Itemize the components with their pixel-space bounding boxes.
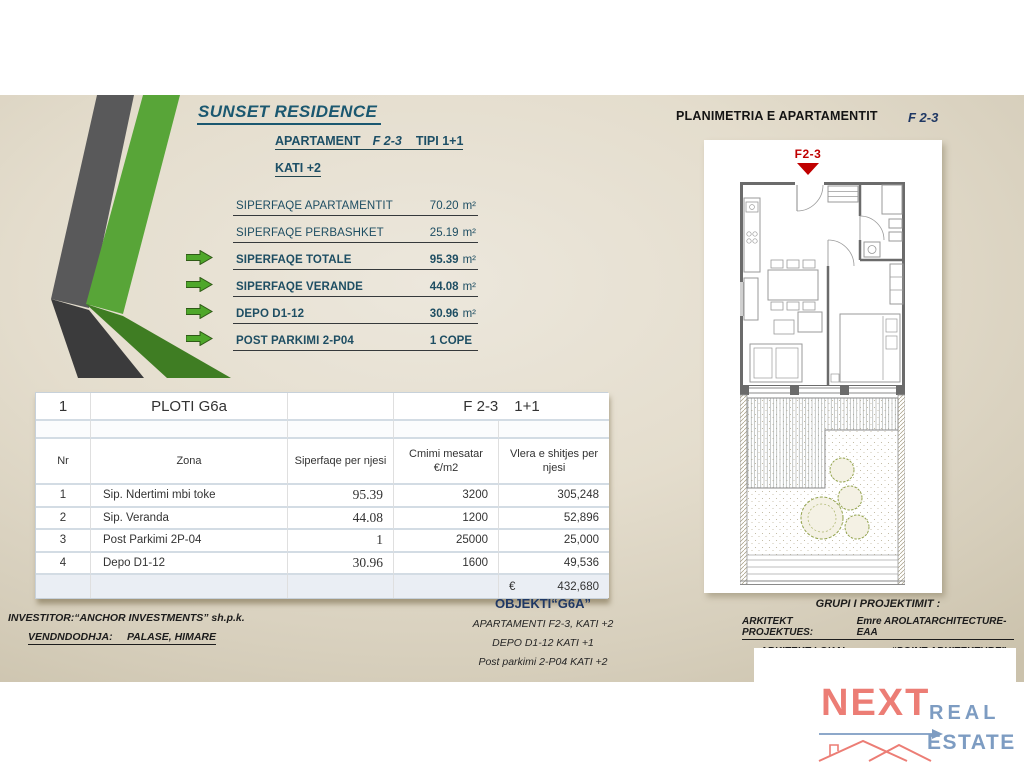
spec-number: 25.19 bbox=[430, 227, 459, 239]
green-arrow-icon bbox=[186, 331, 213, 346]
table-cell: 305,248 bbox=[499, 485, 609, 508]
object-title: OBJEKTI“G6A” bbox=[437, 596, 649, 611]
spec-label: DEPO D1-12 bbox=[236, 308, 304, 320]
spec-number: 1 COPE bbox=[430, 335, 472, 347]
object-lines: APARTAMENTI F2-3, KATI +2DEPO D1-12 KATI… bbox=[437, 615, 649, 672]
location-label: VENDNDODHJA: bbox=[28, 631, 113, 643]
spec-number: 95.39 bbox=[430, 254, 459, 266]
currency-symbol: € bbox=[509, 581, 515, 593]
spec-unit: m² bbox=[463, 308, 476, 320]
spec-value: 30.96 m² bbox=[430, 308, 476, 320]
spec-value: 95.39 m² bbox=[430, 254, 476, 266]
apartment-type: TIPI 1+1 bbox=[416, 134, 464, 148]
spec-number: 30.96 bbox=[430, 308, 459, 320]
table-cell-empty bbox=[36, 575, 91, 598]
table-cell-empty bbox=[288, 575, 394, 598]
spec-unit: m² bbox=[463, 227, 476, 239]
unit-marker-arrow-icon bbox=[797, 163, 819, 175]
table-cell: 25,000 bbox=[499, 530, 609, 553]
floorplan-panel: F2-3 bbox=[704, 140, 942, 593]
table-cell: 1 bbox=[288, 530, 394, 553]
spec-label: SIPERFAQE APARTAMENTIT bbox=[236, 200, 393, 212]
plot-name: PLOTI G6a bbox=[91, 393, 288, 421]
green-arrow-icon bbox=[186, 250, 213, 265]
architect-value: Emre AROLATARCHITECTURE-EAA bbox=[857, 616, 1014, 638]
spec-value: 44.08 m² bbox=[430, 281, 476, 293]
spec-value: 70.20 m² bbox=[430, 200, 476, 212]
column-header: Siperfaqe per njesi bbox=[288, 439, 394, 485]
column-header: Vlera e shitjes per njesi bbox=[499, 439, 609, 485]
object-line: DEPO D1-12 KATI +1 bbox=[437, 634, 649, 653]
spec-label: POST PARKIMI 2-P04 bbox=[236, 335, 354, 347]
chevron-decoration bbox=[0, 95, 260, 379]
table-cell-empty bbox=[394, 575, 499, 598]
spec-label: SIPERFAQE PERBASHKET bbox=[236, 227, 384, 239]
spec-row: POST PARKIMI 2-P04 1 COPE bbox=[233, 324, 478, 351]
table-cell: 1 bbox=[36, 485, 91, 508]
table-cell: Post Parkimi 2P-04 bbox=[91, 530, 288, 553]
table-cell: 30.96 bbox=[288, 553, 394, 576]
object-block: OBJEKTI“G6A” APARTAMENTI F2-3, KATI +2DE… bbox=[437, 596, 649, 672]
green-arrow-icon bbox=[186, 304, 213, 319]
table-cell-empty bbox=[91, 421, 288, 439]
project-title: SUNSET RESIDENCE bbox=[197, 102, 381, 125]
slide: SUNSET RESIDENCE APARTAMENTF 2-3TIPI 1+1… bbox=[0, 0, 1024, 768]
unit-marker-label: F2-3 bbox=[783, 147, 833, 161]
unit-title: F 2-3 1+1 bbox=[394, 393, 609, 421]
table-cell: 2 bbox=[36, 508, 91, 531]
spec-label: SIPERFAQE VERANDE bbox=[236, 281, 363, 293]
green-arrow-icon bbox=[186, 277, 213, 292]
table-cell: 95.39 bbox=[288, 485, 394, 508]
spec-label: SIPERFAQE TOTALE bbox=[236, 254, 352, 266]
design-group-title: GRUPI I PROJEKTIMIT : bbox=[742, 598, 1014, 610]
table-cell: 4 bbox=[36, 553, 91, 576]
logo-roof-icon bbox=[817, 736, 937, 763]
spec-row: SIPERFAQE PERBASHKET 25.19 m² bbox=[233, 216, 478, 243]
spec-row: DEPO D1-12 30.96 m² bbox=[233, 297, 478, 324]
total-value: 432,680 bbox=[557, 581, 599, 593]
spec-row: SIPERFAQE APARTAMENTIT 70.20 m² bbox=[233, 189, 478, 216]
apartment-unit: F 2-3 bbox=[373, 134, 402, 148]
spec-value: 1 COPE bbox=[430, 335, 476, 347]
column-header: Zona bbox=[91, 439, 288, 485]
table-cell: Sip. Ndertimi mbi toke bbox=[91, 485, 288, 508]
location-value: PALASE, HIMARE bbox=[127, 631, 216, 643]
table-cell: 52,896 bbox=[499, 508, 609, 531]
price-table: 1 PLOTI G6a F 2-3 1+1 Nr Zona Siperfaqe … bbox=[35, 392, 608, 599]
object-line: APARTAMENTI F2-3, KATI +2 bbox=[437, 615, 649, 634]
plot-number: 1 bbox=[36, 393, 91, 421]
spec-number: 44.08 bbox=[430, 281, 459, 293]
object-line: Post parkimi 2-P04 KATI +2 bbox=[437, 653, 649, 672]
spec-row: SIPERFAQE TOTALE 95.39 m² bbox=[233, 243, 478, 270]
apartment-label: APARTAMENT bbox=[275, 134, 361, 148]
location-line: VENDNDODHJA: PALASE, HIMARE bbox=[28, 631, 216, 645]
column-header: Nr bbox=[36, 439, 91, 485]
table-cell-empty bbox=[91, 575, 288, 598]
table-cell-empty bbox=[499, 421, 609, 439]
total-cell: € 432,680 bbox=[499, 575, 609, 598]
spec-number: 70.20 bbox=[430, 200, 459, 212]
spec-unit: m² bbox=[463, 200, 476, 212]
spec-row: SIPERFAQE VERANDE 44.08 m² bbox=[233, 270, 478, 297]
spec-list: SIPERFAQE APARTAMENTIT 70.20 m² SIPERFAQ… bbox=[233, 189, 478, 351]
investor-line: INVESTITOR:“ANCHOR INVESTMENTS” sh.p.k. bbox=[8, 612, 245, 624]
spec-unit: m² bbox=[463, 281, 476, 293]
table-cell-empty bbox=[394, 421, 499, 439]
table-cell: 1200 bbox=[394, 508, 499, 531]
table-cell: 49,536 bbox=[499, 553, 609, 576]
table-cell-empty bbox=[36, 421, 91, 439]
architect-label: ARKITEKT PROJEKTUES: bbox=[742, 616, 857, 638]
column-header: Cmimi mesatar €/m2 bbox=[394, 439, 499, 485]
spec-unit: m² bbox=[463, 254, 476, 266]
table-cell: 3 bbox=[36, 530, 91, 553]
table-cell: 1600 bbox=[394, 553, 499, 576]
slide-body: SUNSET RESIDENCE APARTAMENTF 2-3TIPI 1+1… bbox=[0, 95, 1024, 682]
logo-area: NEXT REAL ESTATE bbox=[754, 648, 1016, 768]
table-cell: Sip. Veranda bbox=[91, 508, 288, 531]
logo-real-text: REAL bbox=[929, 702, 999, 725]
unit-type: 1+1 bbox=[514, 398, 539, 415]
table-cell-empty bbox=[288, 421, 394, 439]
spec-value: 25.19 m² bbox=[430, 227, 476, 239]
apartment-line: APARTAMENTF 2-3TIPI 1+1 bbox=[275, 134, 463, 150]
table-cell: Depo D1-12 bbox=[91, 553, 288, 576]
table-cell: 3200 bbox=[394, 485, 499, 508]
plan-section-title: PLANIMETRIA E APARTAMENTIT bbox=[676, 109, 878, 123]
floorplan-drawing bbox=[740, 182, 905, 585]
table-cell-empty bbox=[288, 393, 394, 421]
logo-next-text: NEXT bbox=[821, 682, 930, 725]
floor-label: KATI +2 bbox=[275, 161, 321, 177]
table-cell: 44.08 bbox=[288, 508, 394, 531]
unit-code: F 2-3 bbox=[463, 398, 498, 415]
architect-line: ARKITEKT PROJEKTUES: Emre AROLATARCHITEC… bbox=[742, 616, 1014, 640]
table-cell: 25000 bbox=[394, 530, 499, 553]
next-real-estate-logo: NEXT REAL ESTATE bbox=[815, 686, 1015, 766]
plan-unit-code: F 2-3 bbox=[908, 110, 938, 125]
